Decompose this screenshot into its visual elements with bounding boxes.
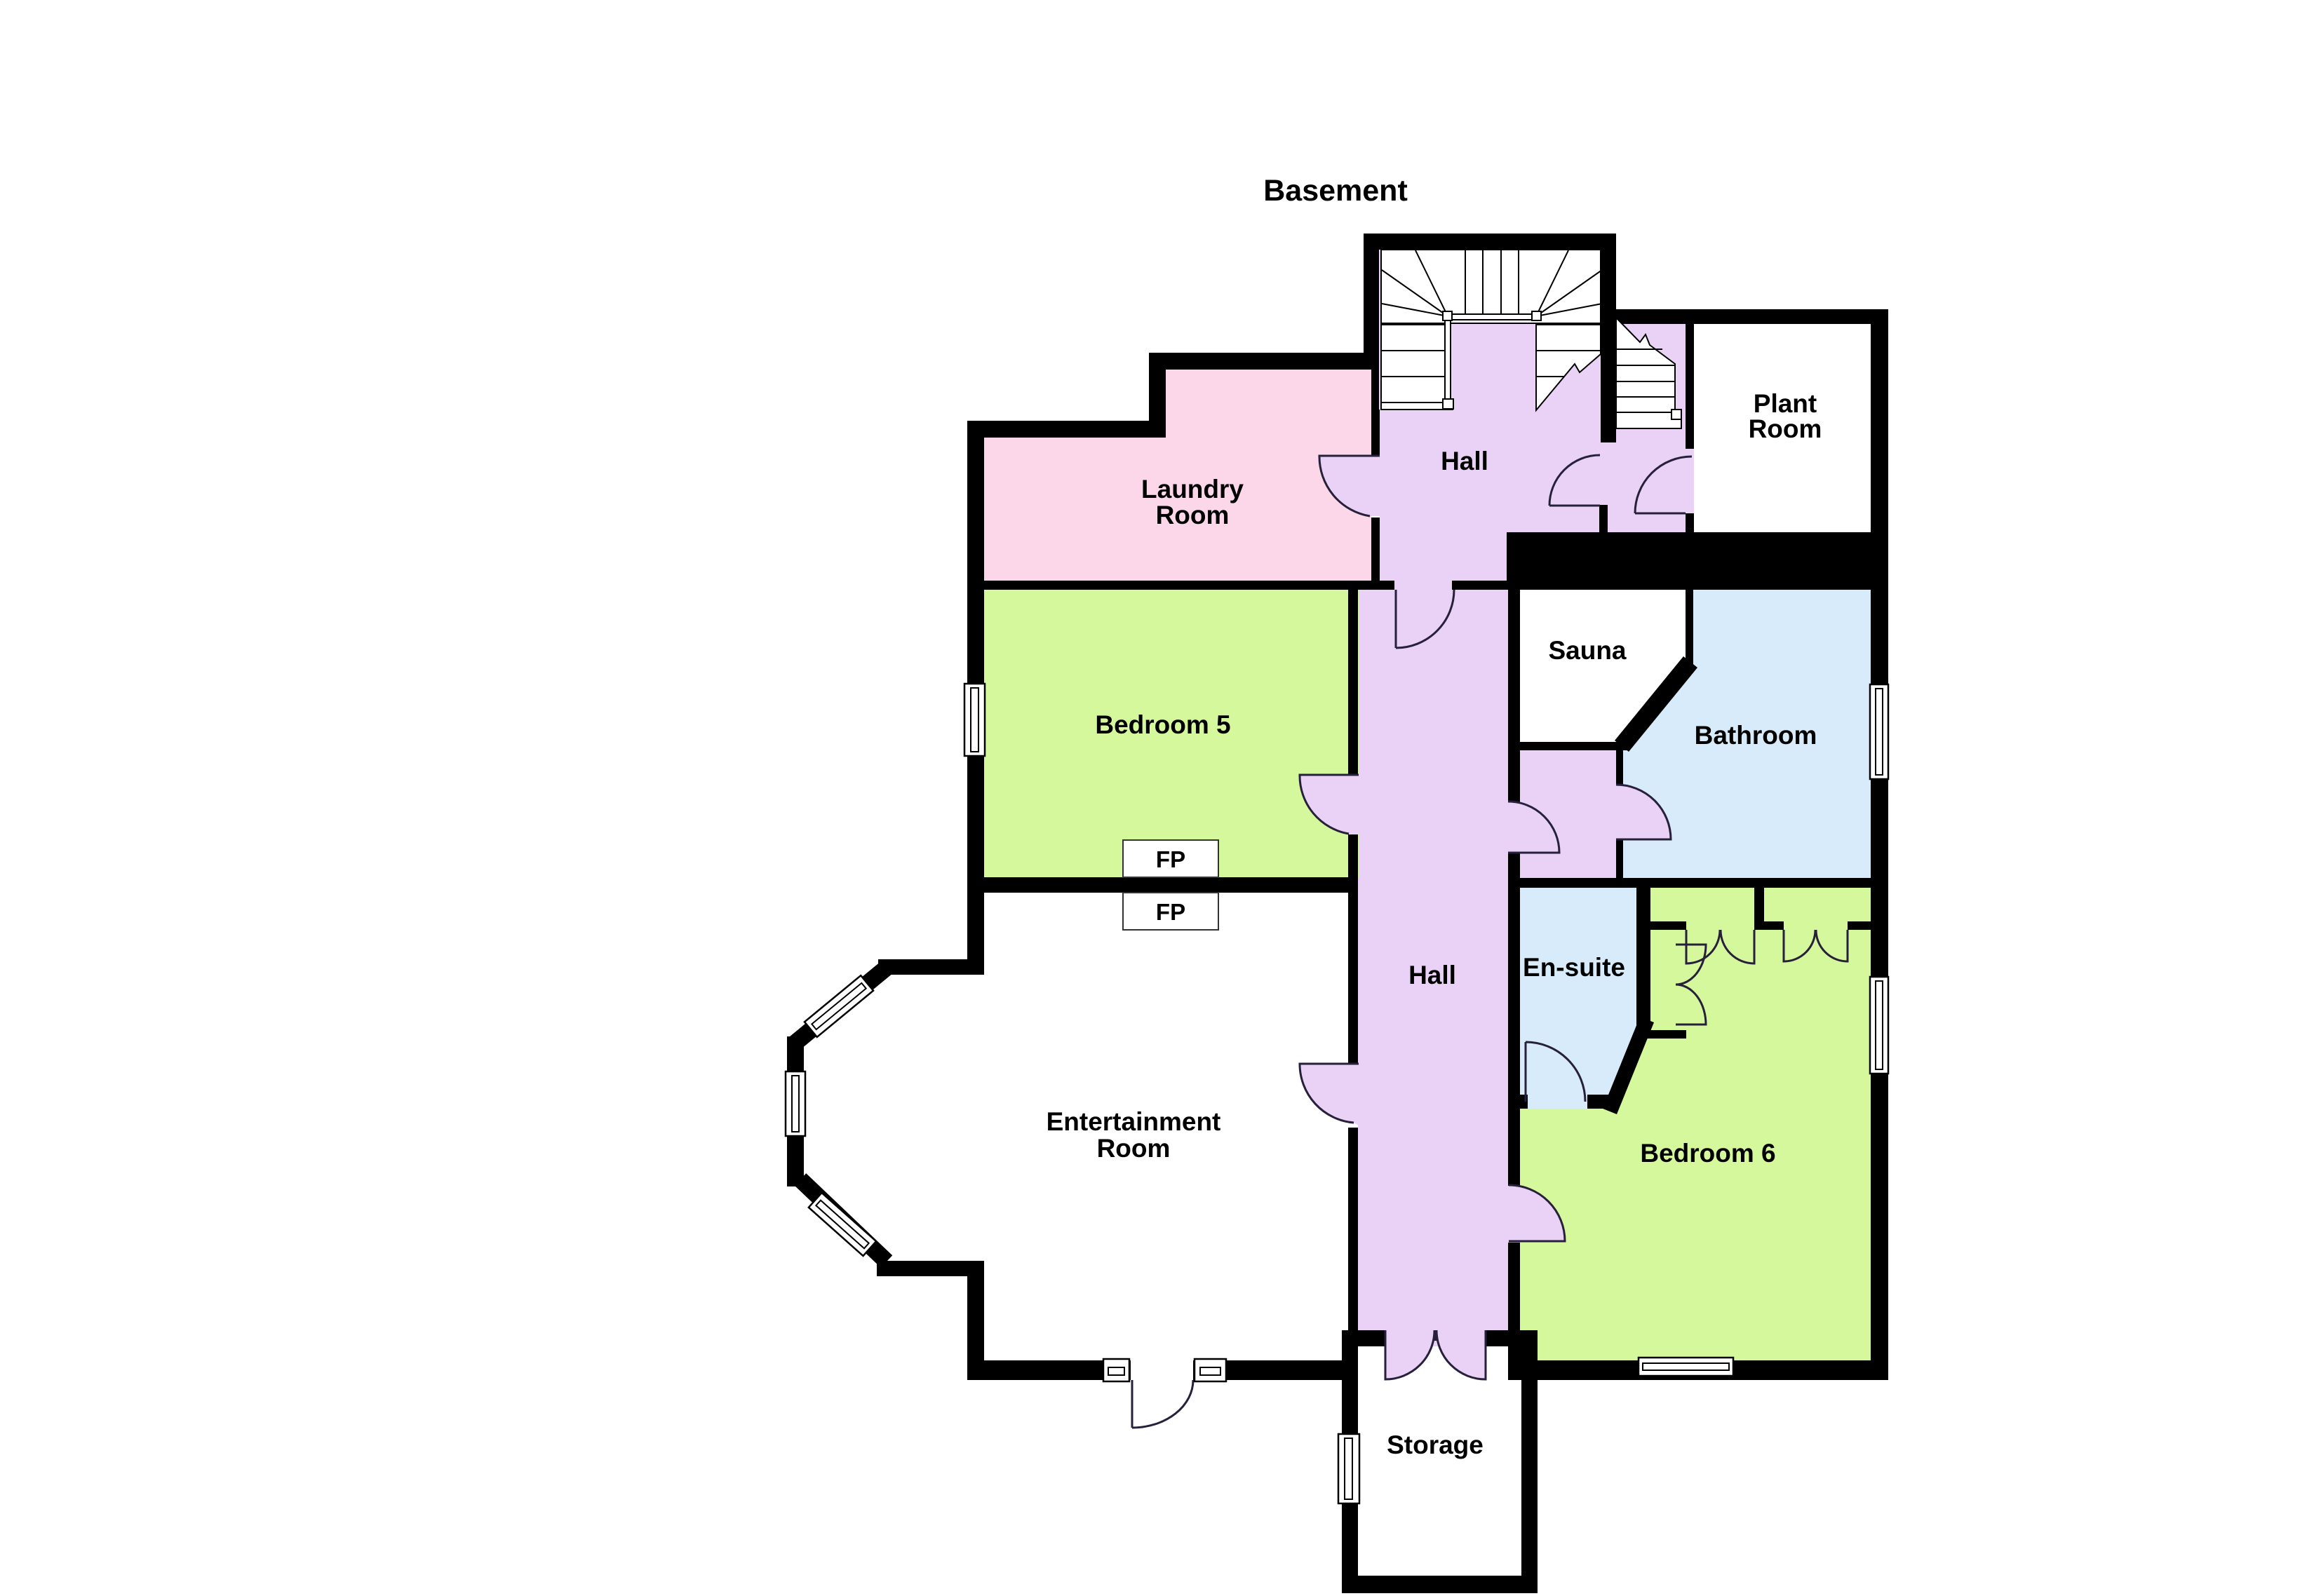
svg-text:Hall: Hall [1408, 961, 1456, 989]
svg-text:Laundry: Laundry [1141, 475, 1244, 503]
svg-text:Storage: Storage [1387, 1431, 1484, 1459]
svg-text:Room: Room [1749, 414, 1822, 443]
svg-text:Room: Room [1097, 1134, 1171, 1163]
svg-text:Entertainment: Entertainment [1047, 1107, 1221, 1136]
svg-text:FP: FP [1156, 846, 1185, 872]
svg-text:Bathroom: Bathroom [1695, 721, 1817, 750]
svg-text:FP: FP [1156, 899, 1185, 925]
svg-text:Plant: Plant [1754, 389, 1817, 418]
svg-text:Room: Room [1156, 501, 1230, 529]
svg-text:Basement: Basement [1263, 174, 1408, 208]
svg-text:Sauna: Sauna [1548, 636, 1626, 665]
svg-text:Bedroom 5: Bedroom 5 [1095, 710, 1230, 739]
svg-text:Bedroom 6: Bedroom 6 [1640, 1139, 1775, 1168]
svg-text:Hall: Hall [1441, 447, 1488, 475]
svg-text:En-suite: En-suite [1523, 953, 1625, 982]
